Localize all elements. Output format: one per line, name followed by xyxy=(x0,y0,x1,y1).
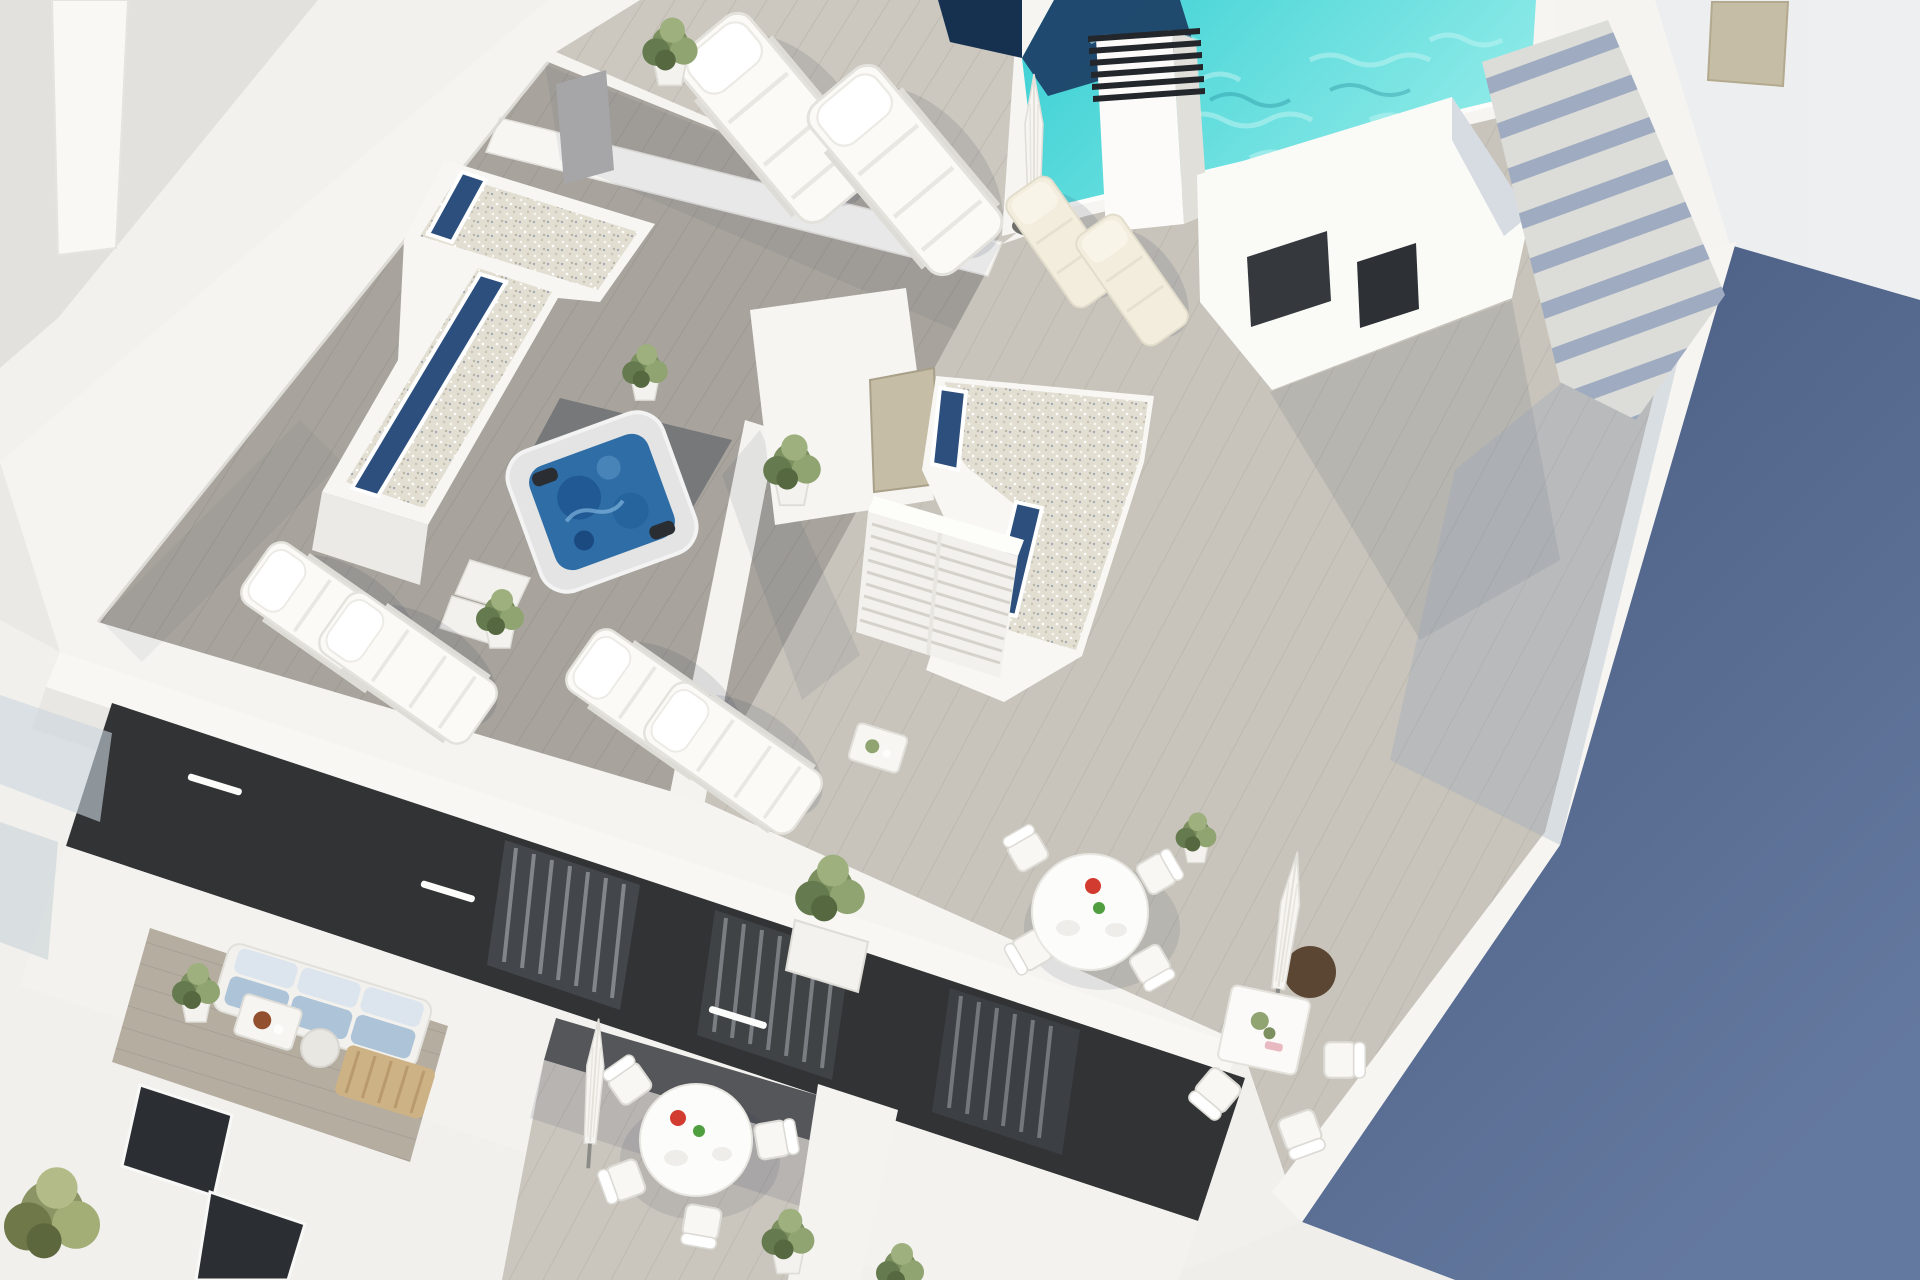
dark-planter xyxy=(1284,946,1336,998)
round-table-bottom xyxy=(640,1084,752,1196)
background-door xyxy=(1708,2,1788,86)
pouf xyxy=(301,1029,339,1067)
bistro-table xyxy=(1217,985,1311,1076)
green-fruit xyxy=(1093,902,1105,914)
architectural-render-canvas xyxy=(0,0,1920,1280)
red-fruit xyxy=(1085,878,1101,894)
render-scene xyxy=(0,0,1920,1280)
glass-panel-left xyxy=(0,822,58,960)
round-table-right xyxy=(1032,854,1148,970)
skylight-strip-3 xyxy=(932,388,966,470)
wall-pillar xyxy=(52,0,128,255)
roof-doorway xyxy=(556,70,614,184)
chimney-louvers xyxy=(1088,28,1208,232)
